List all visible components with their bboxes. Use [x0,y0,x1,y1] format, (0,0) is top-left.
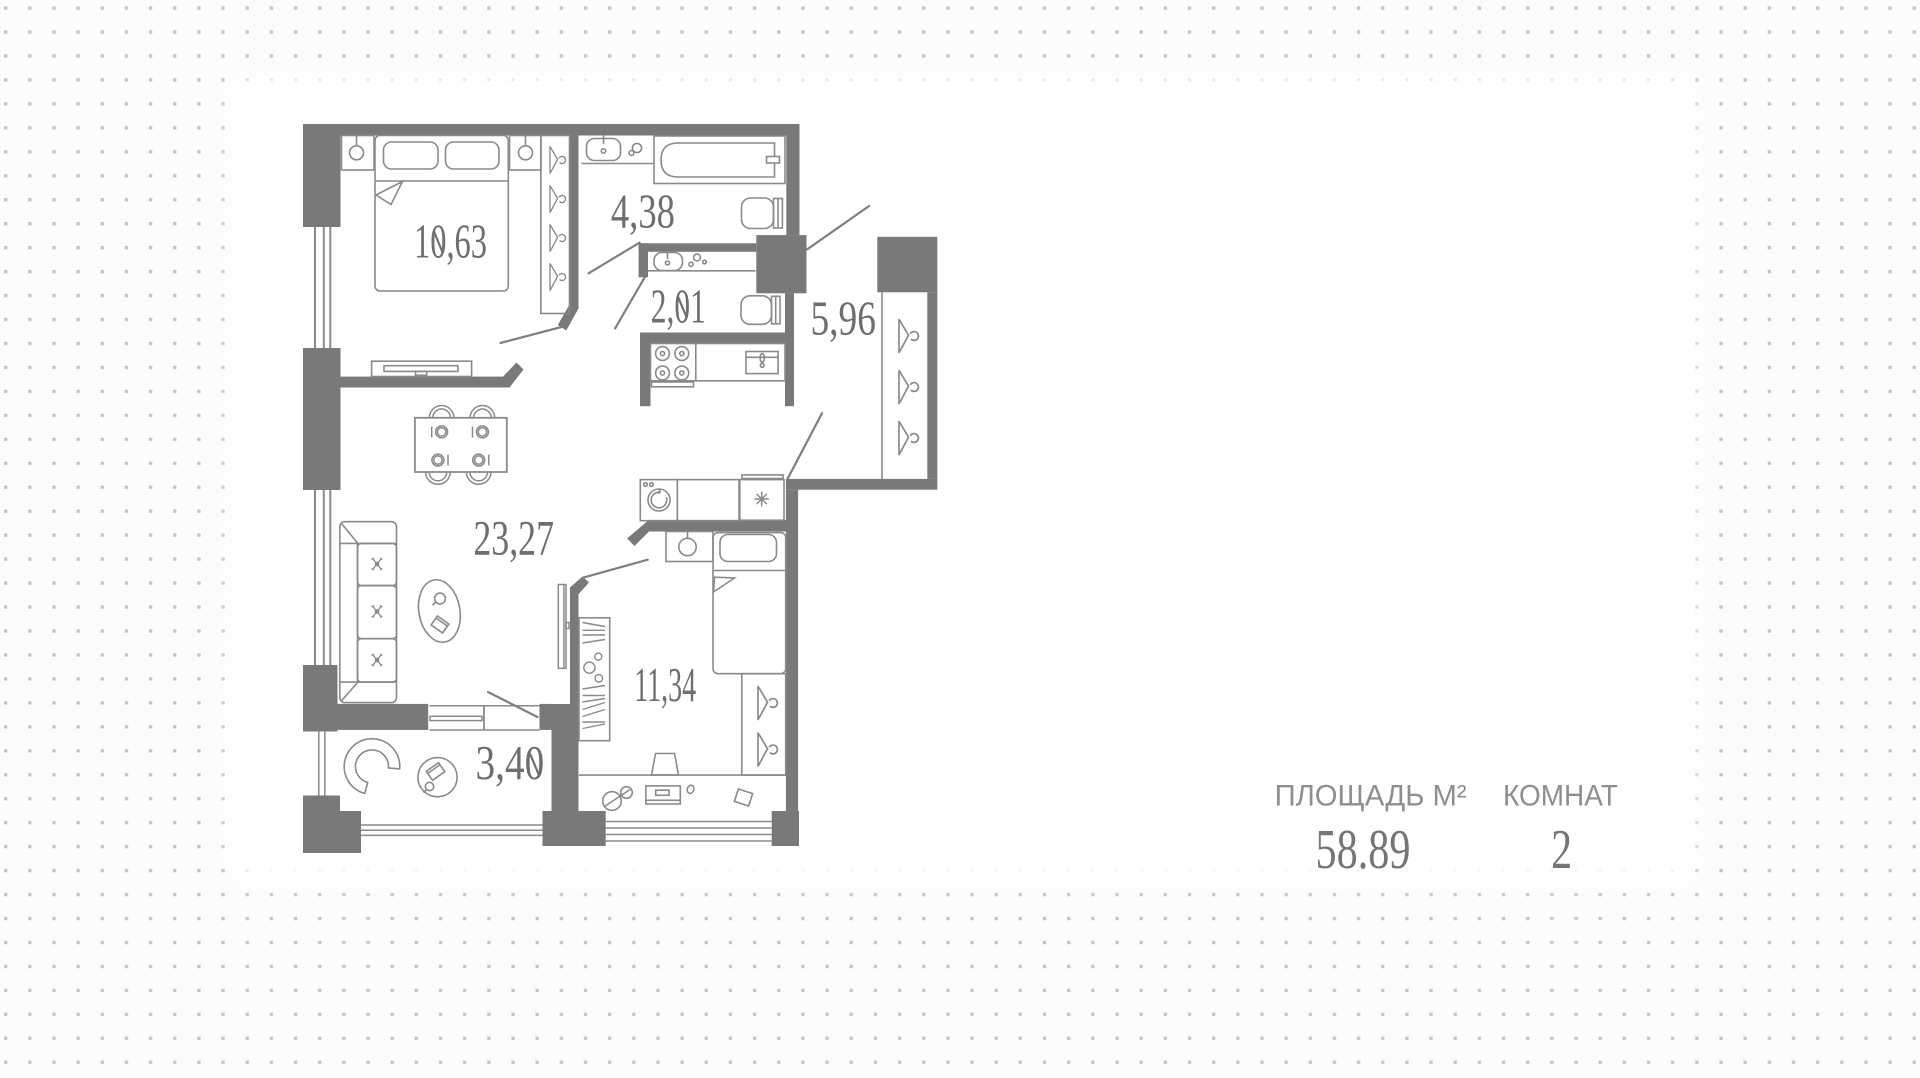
svg-text:КОМНАТ: КОМНАТ [1503,780,1618,813]
svg-text:11,34: 11,34 [634,659,696,712]
svg-text:ПЛОЩАДЬ М²: ПЛОЩАДЬ М² [1275,780,1467,813]
svg-text:58.89: 58.89 [1316,819,1411,881]
svg-text:10,63: 10,63 [414,216,487,269]
svg-text:5,96: 5,96 [810,293,876,346]
svg-text:23,27: 23,27 [473,510,554,566]
svg-text:2: 2 [1551,819,1572,881]
svg-text:2,01: 2,01 [651,281,706,334]
svg-text:4,38: 4,38 [611,185,675,238]
